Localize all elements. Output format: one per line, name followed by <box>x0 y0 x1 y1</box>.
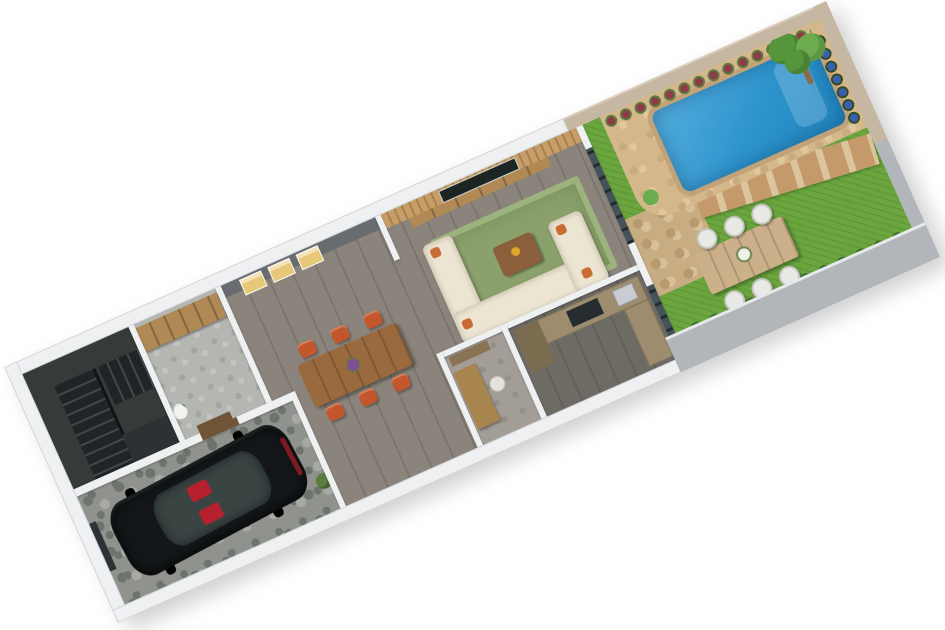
render-canvas <box>0 0 945 630</box>
floor-plan-scene <box>4 1 940 623</box>
